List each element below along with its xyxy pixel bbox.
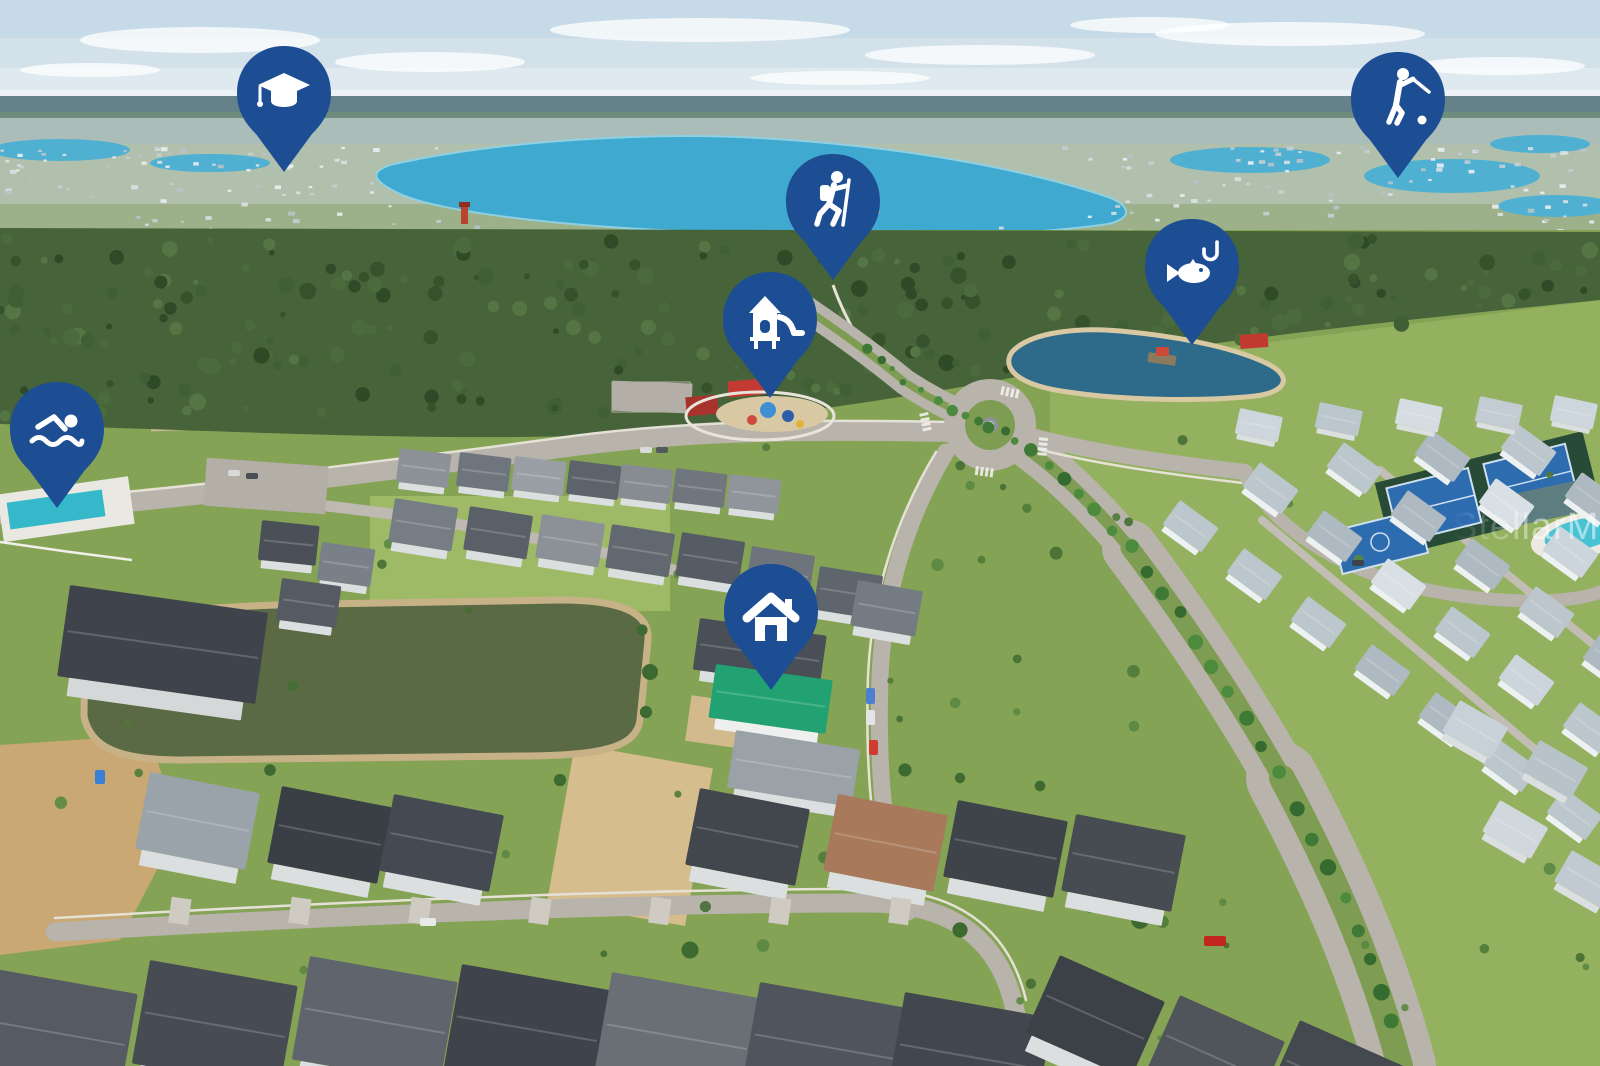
- golf-map-pin: [1345, 49, 1451, 181]
- aerial-photo: StellarMLS: [0, 0, 1600, 1066]
- fishing-map-pin: [1139, 216, 1245, 348]
- school-map-pin: [231, 43, 337, 175]
- home-map-pin: [718, 561, 824, 693]
- playground-map-pin: [717, 269, 823, 401]
- mls-watermark: StellarMLS: [1452, 506, 1600, 549]
- swimming-map-pin: [4, 379, 110, 511]
- hiking-map-pin: [780, 151, 886, 283]
